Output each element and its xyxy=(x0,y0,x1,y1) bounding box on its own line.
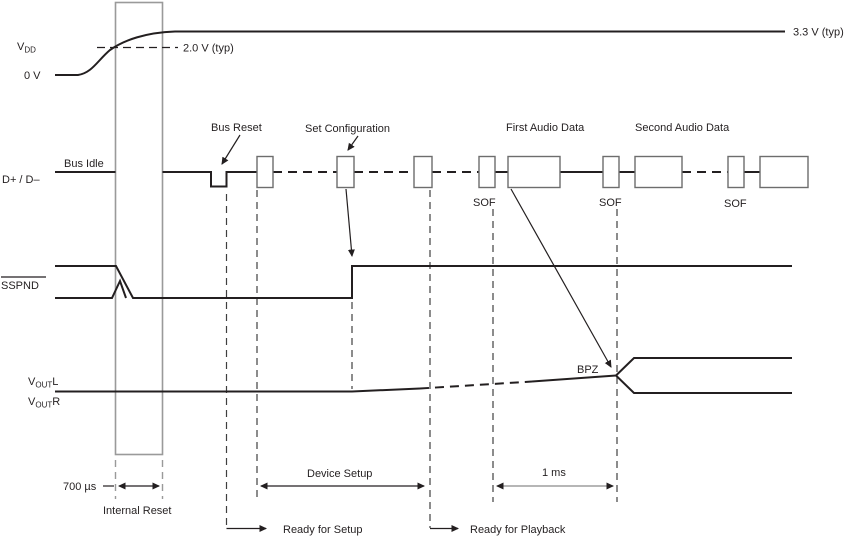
internal-reset-label: Internal Reset xyxy=(103,505,171,517)
vout-right-label: VOUTR xyxy=(28,396,60,410)
sof3-label: SOF xyxy=(724,198,747,210)
set-config-to-sspnd-leader xyxy=(346,189,352,256)
packet-box-1 xyxy=(257,157,273,188)
vout-split-upper xyxy=(616,358,792,376)
vout-flat-line xyxy=(55,389,420,392)
vout-left-label: VOUTL xyxy=(28,376,58,390)
packet-box-set-configuration xyxy=(337,157,354,188)
bus-idle-label: Bus Idle xyxy=(64,158,104,170)
bpz-label: BPZ xyxy=(577,364,599,376)
vout-split-lower xyxy=(616,376,792,394)
threshold-label: 2.0 V (typ) xyxy=(183,43,234,55)
set-configuration-label: Set Configuration xyxy=(305,123,390,135)
timing-diagram-figure: VDD 0 V 2.0 V (typ) 3.3 V (typ) D+ / D– … xyxy=(0,0,849,542)
zero-volts-label: 0 V xyxy=(24,70,41,82)
first-audio-label: First Audio Data xyxy=(506,122,585,134)
ready-for-setup-label: Ready for Setup xyxy=(283,524,363,536)
device-setup-label: Device Setup xyxy=(307,468,372,480)
packet-box-sof1 xyxy=(479,157,495,188)
second-audio-label: Second Audio Data xyxy=(635,122,730,134)
vout-ramp-solid xyxy=(532,376,616,382)
packet-box-second-audio xyxy=(635,157,682,188)
supply-label: 3.3 V (typ) xyxy=(793,27,844,39)
vdd-waveform xyxy=(55,32,785,76)
usb-signal-label: D+ / D– xyxy=(2,174,40,186)
sspnd-waveform xyxy=(55,266,792,298)
bus-reset-label: Bus Reset xyxy=(211,122,262,134)
sspnd-label: SSPND xyxy=(1,280,39,292)
vout-ramp-dashed xyxy=(420,382,532,389)
packet-box-sof2 xyxy=(603,157,619,188)
bus-reset-arrow xyxy=(222,135,240,164)
sof2-label: SOF xyxy=(599,197,622,209)
one-ms-label: 1 ms xyxy=(542,467,566,479)
internal-reset-window xyxy=(116,3,163,455)
ready-for-playback-label: Ready for Playback xyxy=(470,524,566,536)
sof1-label: SOF xyxy=(473,197,496,209)
packet-box-3 xyxy=(760,157,808,188)
timing-diagram-canvas: VDD 0 V 2.0 V (typ) 3.3 V (typ) D+ / D– … xyxy=(0,0,849,542)
set-configuration-arrow xyxy=(348,136,358,150)
vdd-label: VDD xyxy=(17,41,36,55)
packet-box-sof3 xyxy=(728,157,744,188)
usb-bus-reset-notch xyxy=(163,172,258,187)
packet-box-2 xyxy=(414,157,432,188)
first-audio-to-bpz-leader xyxy=(511,189,611,367)
reset-width-label: 700 µs xyxy=(63,481,97,493)
packet-box-first-audio xyxy=(508,157,560,188)
